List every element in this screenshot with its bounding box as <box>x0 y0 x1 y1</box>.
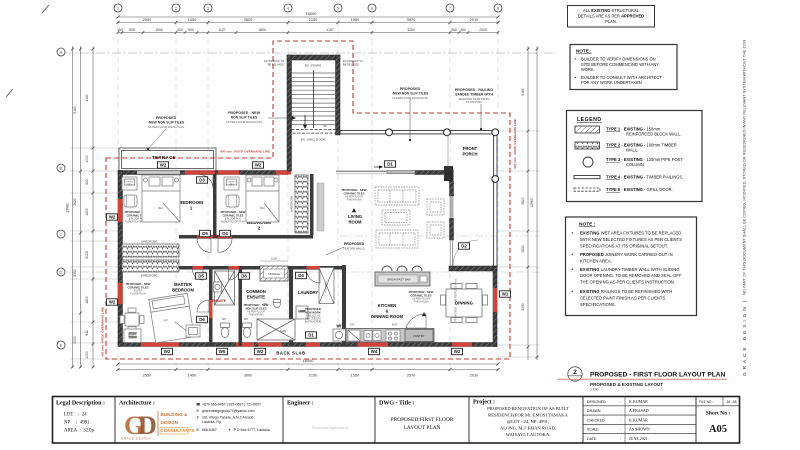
svg-text:Legal Description :: Legal Description : <box>56 401 105 407</box>
svg-text:D6: D6 <box>199 317 205 322</box>
svg-text:BEDROOM: BEDROOM <box>179 200 203 205</box>
svg-text:PROPOSED: PROPOSED <box>344 242 365 246</box>
svg-text:SPECIFICATIONS.: SPECIFICATIONS. <box>580 302 616 307</box>
svg-text:COMMON: COMMON <box>246 289 266 294</box>
svg-text:SPECIFICATIONS AT ITS ORIGINAL: SPECIFICATIONS AT ITS ORIGINAL SETOUT. <box>580 243 668 248</box>
svg-text:Lautoka, Fiji: Lautoka, Fiji <box>202 420 221 424</box>
svg-text:AS PER FLOOR FINISH PLAN: AS PER FLOOR FINISH PLAN <box>226 120 262 124</box>
svg-text:DETAILS ARE AS PER APPROVED: DETAILS ARE AS PER APPROVED <box>578 13 644 18</box>
svg-text:STV: STV <box>350 324 355 327</box>
svg-text:EXISTING LAUNDRY TIMBER WALL W: EXISTING LAUNDRY TIMBER WALL WITH SLIDIN… <box>580 267 680 272</box>
svg-text:DRAWN: DRAWN <box>587 409 601 413</box>
svg-text:Architecture :: Architecture : <box>119 401 155 407</box>
svg-text:2000: 2000 <box>479 28 487 32</box>
svg-text:FLOOR PLAN: FLOOR PLAN <box>130 293 145 296</box>
svg-text:FINISH PLAN: FINISH PLAN <box>414 301 429 304</box>
svg-text:922: 922 <box>85 179 89 185</box>
svg-text:2010: 2010 <box>470 17 479 22</box>
svg-text:1200: 1200 <box>271 257 277 261</box>
svg-text:BEDROOM: BEDROOM <box>172 288 194 293</box>
svg-text:5160: 5160 <box>521 88 525 96</box>
svg-text:TYPE 4 - EXISTING - TIMBER RA: TYPE 4 - EXISTING - TIMBER RAILINGS. <box>606 175 683 180</box>
svg-text:EXISTING WET AREA FIXTURES TO: EXISTING WET AREA FIXTURES TO BE REPLACE… <box>580 231 681 236</box>
svg-text:1530: 1530 <box>521 245 525 253</box>
svg-text:1000: 1000 <box>85 351 89 359</box>
svg-text:AS SHOWN: AS SHOWN <box>629 427 650 432</box>
svg-text:150: 150 <box>117 28 123 32</box>
svg-text:WARDROBE: WARDROBE <box>141 240 158 244</box>
svg-text:INSTRUCTION: INSTRUCTION <box>305 320 322 323</box>
svg-text:PLAN.: PLAN. <box>605 19 617 24</box>
svg-text:SELECTED PAINT FINISH AS PER C: SELECTED PAINT FINISH AS PER CLIENTS <box>580 296 665 301</box>
svg-text::: : <box>620 428 621 432</box>
svg-text:K.KUMAR: K.KUMAR <box>629 399 648 404</box>
svg-text:D2: D2 <box>461 244 467 249</box>
svg-text:☎: ☎ <box>196 403 201 407</box>
svg-text:Project :: Project : <box>473 400 495 406</box>
svg-text:-NEW NON SLIP TILES: -NEW NON SLIP TILES <box>148 121 185 125</box>
svg-text:TYPE 2 - EXISTING - 100mm TIM: TYPE 2 - EXISTING - 100mm TIMBER <box>606 143 677 148</box>
svg-text:Sheet No :: Sheet No : <box>706 411 731 417</box>
svg-text:D: D <box>60 270 63 275</box>
svg-text:LOT : 24: LOT : 24 <box>64 413 87 418</box>
svg-text:WC: WC <box>244 317 248 321</box>
svg-text:D1: D1 <box>387 162 393 167</box>
svg-text:3600: 3600 <box>244 372 253 377</box>
svg-text:KITCHEN: KITCHEN <box>378 303 397 308</box>
svg-text:PROPOSED - FIRST FLOOR LAYOUT: PROPOSED - FIRST FLOOR LAYOUT PLAN <box>590 372 726 379</box>
svg-text:D1: D1 <box>308 333 314 338</box>
svg-text:1450: 1450 <box>188 17 197 22</box>
svg-text:TERRACE: TERRACE <box>152 155 176 160</box>
svg-text:FINISH PLAN: FINISH PLAN <box>347 199 362 202</box>
svg-text:C: C <box>60 232 63 237</box>
svg-text:2550: 2550 <box>143 372 152 377</box>
svg-text:A.PRASAD: A.PRASAD <box>629 408 649 413</box>
svg-text:D6: D6 <box>241 274 247 279</box>
svg-text:W2: W2 <box>109 300 116 305</box>
svg-text::: : <box>620 418 621 422</box>
svg-text:W4: W4 <box>371 349 378 354</box>
svg-text:A: A <box>60 50 63 55</box>
svg-text:DOOR OPENING, TO BE REMOVED AN: DOOR OPENING, TO BE REMOVED AND SEAL-OFF <box>580 273 682 278</box>
svg-text:1: 1 <box>190 206 193 211</box>
svg-text:TABLE: TABLE <box>126 183 133 186</box>
svg-text:PORCH: PORCH <box>462 152 477 157</box>
svg-text:3350: 3350 <box>521 303 525 311</box>
svg-text:WITH NEW SELECTED FIXTURES AS: WITH NEW SELECTED FIXTURES AS PER CLIENT… <box>580 237 682 242</box>
svg-text:1450: 1450 <box>188 372 197 377</box>
svg-text:LAUNDRY: LAUNDRY <box>298 290 319 295</box>
svg-text:DWG - Title :: DWG - Title : <box>379 401 414 407</box>
svg-text:WALL.: WALL. <box>626 148 638 153</box>
svg-text:PROPOSED - NEW: PROPOSED - NEW <box>409 290 434 294</box>
svg-text:SCALE: SCALE <box>587 428 599 432</box>
svg-text:3200: 3200 <box>407 28 415 32</box>
svg-text:PLUMBING: PLUMBING <box>326 281 328 293</box>
svg-text:1550: 1550 <box>351 372 360 377</box>
svg-text:PROPOSED - NEW: PROPOSED - NEW <box>126 282 151 286</box>
svg-text:3570: 3570 <box>407 372 416 377</box>
svg-text:W5: W5 <box>219 349 226 354</box>
svg-text:12960: 12960 <box>530 198 534 208</box>
svg-text:16000: 16000 <box>306 11 318 16</box>
svg-text:—: — <box>573 378 577 383</box>
svg-text:MASTER: MASTER <box>174 282 192 287</box>
svg-text:350: 350 <box>451 28 457 32</box>
svg-text:2000: 2000 <box>73 336 77 344</box>
svg-text:EX.WINDOW TO: EX.WINDOW TO <box>343 59 363 63</box>
svg-text:2: 2 <box>258 226 261 231</box>
svg-text:B: B <box>60 166 63 171</box>
svg-text:-NEW NON SLIP TILES: -NEW NON SLIP TILES <box>392 92 429 96</box>
svg-text:THE OPENING AS PER CLIENTS INS: THE OPENING AS PER CLIENTS INSTRUCTION. <box>580 280 675 285</box>
svg-text:NO PART OF THIS DOCUMENT SHALL: NO PART OF THIS DOCUMENT SHALL BE COPIED… <box>742 40 747 295</box>
svg-text:NP : 4991: NP : 4991 <box>64 421 90 426</box>
svg-text:K.KUMAR: K.KUMAR <box>629 417 648 422</box>
svg-text:PROPOSED - NEW: PROPOSED - NEW <box>221 210 246 214</box>
svg-text:W2: W2 <box>255 163 262 168</box>
svg-text:400 mm - ROOF OVERHANG LINE: 400 mm - ROOF OVERHANG LINE <box>219 150 271 154</box>
svg-text:TABLE: TABLE <box>228 183 235 186</box>
svg-text:4197: 4197 <box>326 28 334 32</box>
svg-text:BED: BED <box>158 207 163 210</box>
svg-text:E: E <box>60 343 63 348</box>
svg-text:UP: UP <box>323 124 327 128</box>
svg-text:161 Vitogo Parade, A.N.Z Arcad: 161 Vitogo Parade, A.N.Z Arcade, <box>202 416 254 420</box>
svg-text:FINISH PLAN: FINISH PLAN <box>249 314 264 317</box>
svg-text:DINNING ROOM: DINNING ROOM <box>371 314 403 319</box>
svg-text:D4: D4 <box>298 273 304 278</box>
svg-text:Structurally Approved by: Structurally Approved by <box>312 426 349 430</box>
svg-text:WC: WC <box>222 317 226 321</box>
svg-text:PROPOSED:FIRST FLOOR: PROPOSED:FIRST FLOOR <box>391 417 454 423</box>
svg-text:PROPOSED & EXISTING LAYOUT: PROPOSED & EXISTING LAYOUT <box>590 382 663 387</box>
svg-text:5160: 5160 <box>73 106 77 114</box>
svg-text:LAYOUT PLAN: LAYOUT PLAN <box>404 425 441 431</box>
svg-text:900: 900 <box>188 28 194 32</box>
svg-text:RESIDENCE(FOR Mr. EMOSI TAMAKA: RESIDENCE(FOR Mr. EMOSI TAMAKA <box>488 413 568 418</box>
svg-text:FEATURE WALLS: FEATURE WALLS <box>343 247 365 251</box>
svg-text:EX. GRILL DOOR: EX. GRILL DOOR <box>301 138 326 142</box>
svg-text:PROPOSED RENOVATION OF AS BUIL: PROPOSED RENOVATION OF AS BUILT <box>487 406 569 411</box>
svg-text:PROPOSED - NEW: PROPOSED - NEW <box>342 188 367 192</box>
svg-text:PROPOSED: PROPOSED <box>156 116 177 120</box>
svg-text:FOR ANY WORK UNDERTAKEN: FOR ANY WORK UNDERTAKEN <box>581 80 642 85</box>
svg-text:1000: 1000 <box>85 155 89 163</box>
svg-text:2550: 2550 <box>143 17 152 22</box>
svg-text:905: 905 <box>129 28 135 32</box>
svg-text:NOTE :: NOTE : <box>579 221 596 227</box>
svg-text:2150: 2150 <box>309 372 318 377</box>
svg-text:KITCHEN AREA.: KITCHEN AREA. <box>580 259 612 264</box>
svg-text:gracedesigngroup70@yahoo.com: gracedesigngroup70@yahoo.com <box>202 409 255 413</box>
svg-text:W2: W2 <box>160 163 167 168</box>
svg-text:BUILDING &: BUILDING & <box>161 412 188 417</box>
svg-text:NOTE :: NOTE : <box>576 48 592 53</box>
svg-text:3570: 3570 <box>407 17 416 22</box>
svg-text:PROPOSED JOINERY WORK CARRIED-: PROPOSED JOINERY WORK CARRIED-OUT IN <box>580 252 673 257</box>
svg-text:A05: A05 <box>709 424 727 435</box>
svg-text:1800: 1800 <box>258 28 266 32</box>
svg-text:EX.WINDOW TO: EX.WINDOW TO <box>264 59 284 63</box>
svg-text:&: & <box>385 308 388 313</box>
svg-text:4160: 4160 <box>85 94 89 102</box>
svg-text:AS PER FLOOR PLAN: AS PER FLOOR PLAN <box>221 221 246 224</box>
svg-text:THNGS: THNGS <box>128 336 137 339</box>
svg-text:ALL EXISTING STRUCTURAL: ALL EXISTING STRUCTURAL <box>583 8 640 13</box>
svg-text:ENSUITE: ENSUITE <box>212 299 226 303</box>
svg-text:2: 2 <box>573 369 577 376</box>
svg-text:AS EXISTING: AS EXISTING <box>466 100 482 104</box>
svg-text:⚲: ⚲ <box>197 416 200 420</box>
svg-text:DINNING: DINNING <box>455 301 473 306</box>
svg-text:400 mm - ROOF OVERHANG LINE: 400 mm - ROOF OVERHANG LINE <box>513 118 517 170</box>
svg-text:BREAKFAST BAR: BREAKFAST BAR <box>388 278 411 282</box>
svg-text:AREA : 32.0p: AREA : 32.0p <box>64 429 95 434</box>
svg-text:W2: W2 <box>454 349 461 354</box>
svg-text:D3: D3 <box>199 178 205 183</box>
svg-text::: : <box>620 409 621 413</box>
svg-text:BE RELAXED: BE RELAXED <box>268 62 284 66</box>
svg-text:PANTRY: PANTRY <box>413 334 424 338</box>
svg-text:PROPOSED: PROPOSED <box>400 87 421 91</box>
svg-text:BED: BED <box>260 207 265 210</box>
svg-text:W/T: W/T <box>337 325 342 328</box>
svg-text:EXISTING RAILINGS TO BE REFINI: EXISTING RAILINGS TO BE REFINISHED WITH <box>580 289 672 294</box>
svg-text:W2: W2 <box>164 349 171 354</box>
svg-text:P.O Box 5777, Lautoka: P.O Box 5777, Lautoka <box>234 428 270 432</box>
svg-text:+679 666-9467 | 921-0697 |: +679 666-9467 | 921-0697 | 721-0697 <box>202 403 261 407</box>
svg-text:SANDED TIMBER WITH: SANDED TIMBER WITH <box>455 93 493 97</box>
svg-text:W2: W2 <box>257 349 264 354</box>
svg-text:FILE NO :: FILE NO : <box>699 400 713 404</box>
svg-text:SHW: SHW <box>280 329 287 333</box>
svg-text:ROOM: ROOM <box>348 220 362 225</box>
svg-text:LIVING: LIVING <box>348 214 362 219</box>
svg-text:WARDROBE: WARDROBE <box>290 196 294 213</box>
svg-text:3350: 3350 <box>73 269 77 277</box>
svg-text:PROPOSED - RAILING: PROPOSED - RAILING <box>455 88 494 92</box>
svg-text:GRACE DESIGN: GRACE DESIGN <box>121 437 151 441</box>
svg-text:2025: 2025 <box>85 251 89 259</box>
svg-text:400: 400 <box>177 28 183 32</box>
svg-text:GRACE DESIGN: GRACE DESIGN <box>742 304 748 376</box>
svg-text:D5: D5 <box>198 274 204 279</box>
svg-text:EX. STAIRS: EX. STAIRS <box>305 64 321 68</box>
svg-text:DATE: DATE <box>587 437 597 441</box>
svg-text:1600: 1600 <box>85 208 89 216</box>
svg-text:942: 942 <box>85 330 89 336</box>
svg-text:400 mm - ROOF OVERHANG LINE: 400 mm - ROOF OVERHANG LINE <box>101 306 105 358</box>
svg-text:2520: 2520 <box>521 197 525 205</box>
svg-text:666-9467: 666-9467 <box>202 428 217 432</box>
svg-text:CHECKED: CHECKED <box>587 418 605 422</box>
svg-text:REINFORCED BLOCK WALL.: REINFORCED BLOCK WALL. <box>626 132 681 137</box>
svg-text:PROPOSED - NEW: PROPOSED - NEW <box>228 111 261 115</box>
svg-text:W1: W1 <box>502 292 509 297</box>
svg-text:TYPE 5 - EXISTING - GRILL DOO: TYPE 5 - EXISTING - GRILL DOOR. <box>606 187 673 192</box>
svg-text:WORK.: WORK. <box>581 67 595 72</box>
svg-text:HB: HB <box>264 303 268 306</box>
svg-text:1550: 1550 <box>351 17 360 22</box>
svg-text:DESIGN: DESIGN <box>161 420 179 425</box>
svg-text:PROPOSED: PROPOSED <box>305 307 321 311</box>
svg-text:D4: D4 <box>222 231 228 236</box>
svg-text:NON SLIP TILES: NON SLIP TILES <box>231 116 258 120</box>
svg-text:Engineer :: Engineer : <box>287 401 314 407</box>
svg-text:1:100: 1:100 <box>590 388 599 392</box>
svg-text:|: | <box>742 301 748 302</box>
svg-text:BACK SLAB: BACK SLAB <box>276 351 305 356</box>
svg-text:EGG: EGG <box>392 324 397 327</box>
svg-text:WARDROBE: WARDROBE <box>141 274 158 278</box>
svg-text:LEGEND: LEGEND <box>577 117 602 123</box>
svg-text:2620: 2620 <box>73 198 77 206</box>
svg-text:COLUMN.: COLUMN. <box>626 162 645 167</box>
svg-text:DESIGNED: DESIGNED <box>587 400 606 404</box>
svg-text:AS PER FLOOR FINISH PLAN: AS PER FLOOR FINISH PLAN <box>148 125 184 129</box>
svg-text:1900: 1900 <box>155 28 163 32</box>
svg-text:1800: 1800 <box>85 296 89 304</box>
svg-text:W2: W2 <box>109 215 116 220</box>
svg-text:2150: 2150 <box>309 17 318 22</box>
svg-text:2010: 2010 <box>470 372 479 377</box>
svg-text:3600: 3600 <box>244 17 253 22</box>
svg-text:36 - A5: 36 - A5 <box>726 400 736 404</box>
svg-text:13980: 13980 <box>66 203 70 213</box>
svg-text::: : <box>620 400 621 404</box>
svg-text:CONSULTANTS: CONSULTANTS <box>161 428 195 433</box>
svg-text:400: 400 <box>460 28 466 32</box>
svg-text:BE RELAXED: BE RELAXED <box>343 62 359 66</box>
svg-text:STORAGE: STORAGE <box>268 273 280 276</box>
svg-text:D5: D5 <box>202 231 208 236</box>
svg-text:ENSUITE: ENSUITE <box>247 295 265 300</box>
svg-text::: : <box>620 437 621 441</box>
svg-text:FRONT: FRONT <box>463 146 478 151</box>
svg-text:1127: 1127 <box>218 28 225 32</box>
